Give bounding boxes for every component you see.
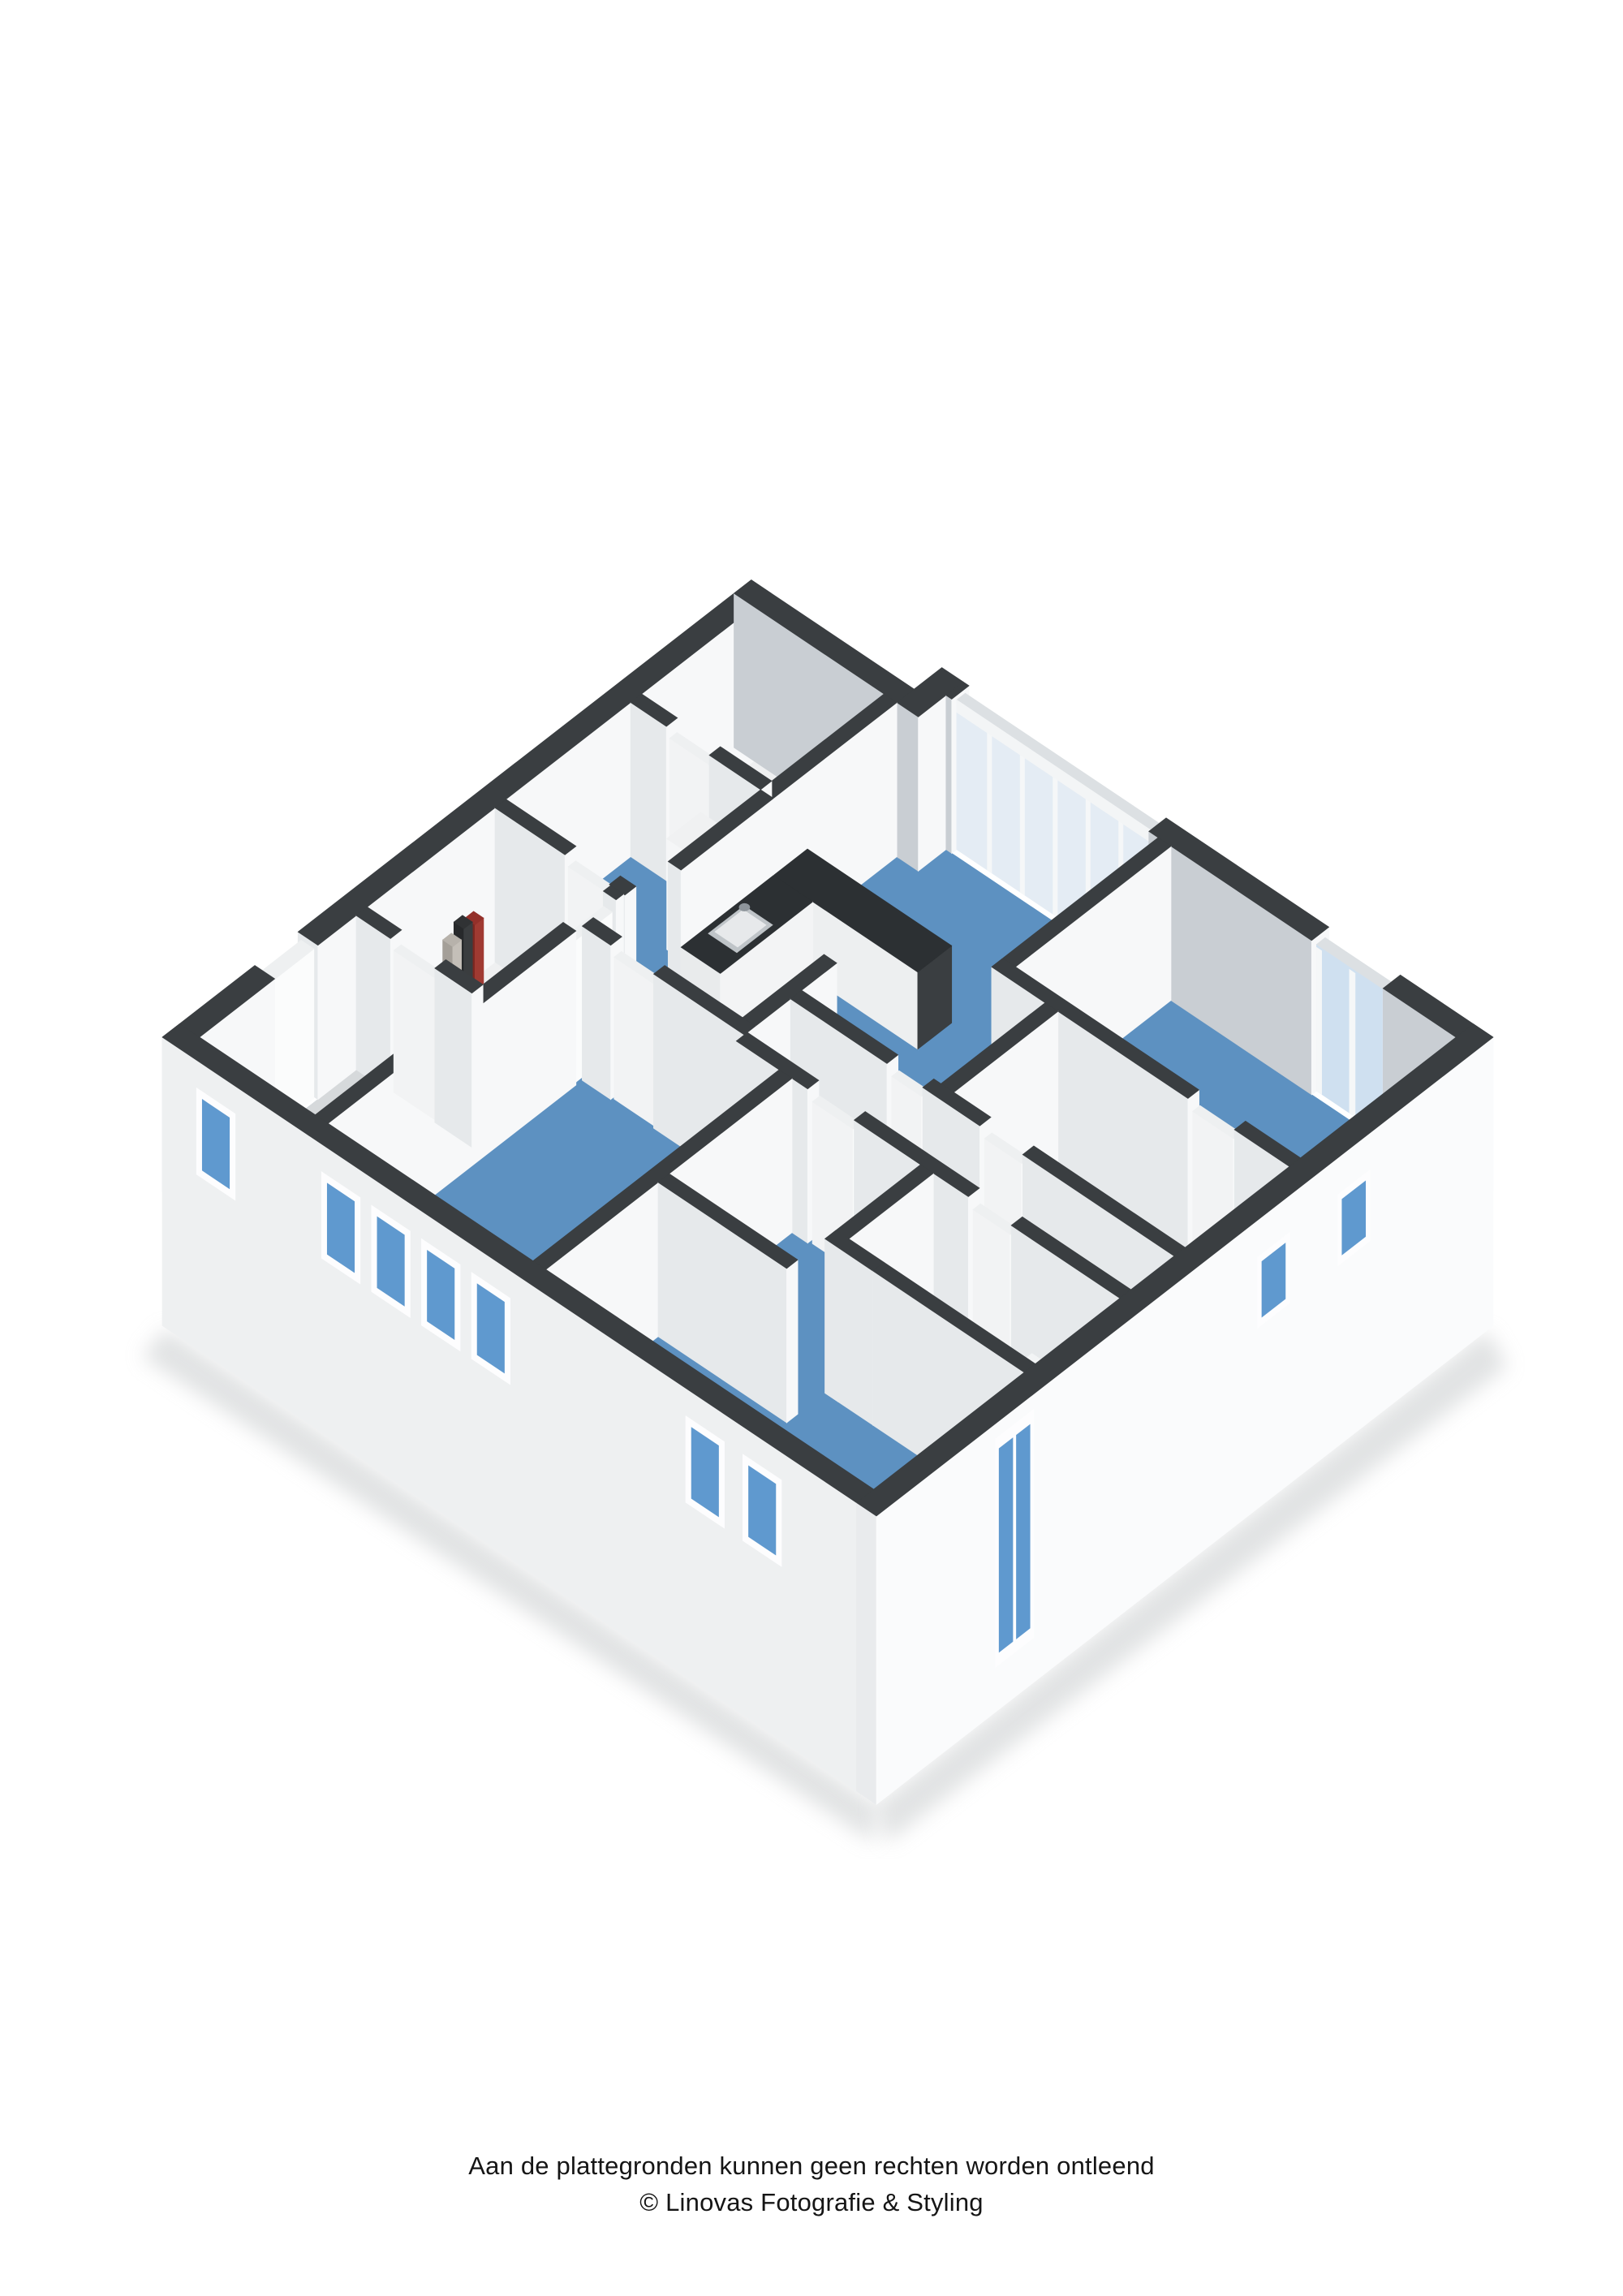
glass-mullion-3	[1053, 768, 1057, 917]
glass-mullion-2	[1020, 746, 1024, 895]
backdoor-se-glass-right	[999, 1438, 1013, 1652]
disclaimer-text: Aan de plattegronden kunnen geen rechten…	[0, 2147, 1623, 2184]
copyright-text: © Linovas Fotografie & Styling	[0, 2184, 1623, 2221]
wall-master-ne-a-face-sw	[582, 926, 610, 1100]
wall-se-face-sw	[856, 1503, 876, 1805]
door-hall-entrance-face-sw	[394, 950, 435, 1120]
door-master-bedroom-face-sw	[614, 957, 654, 1126]
floorplan-page: Aan de plattegronden kunnen geen rechten…	[0, 0, 1623, 2296]
backdoor-se-glass-left	[1017, 1424, 1031, 1639]
wall-hall-entrance-b	[435, 959, 483, 1147]
french-post-left	[1316, 947, 1321, 1094]
french-post-center	[1350, 970, 1355, 1118]
wall-bath-sw-a-face-sw	[825, 1238, 873, 1425]
wall-ne-jog-face-sw	[897, 703, 918, 872]
wall-ne-a-face-sw	[946, 696, 952, 854]
floorplan-3d-render	[0, 0, 1623, 2296]
wall-hall-entrance-b-face-se	[472, 984, 484, 1148]
caption-block: Aan de plattegronden kunnen geen rechten…	[0, 2147, 1623, 2221]
wall-hall-entrance-b-face-sw	[435, 968, 472, 1148]
wall-smallbed-sw-face-se	[786, 1260, 798, 1423]
glass-mullion-1	[988, 724, 992, 873]
walls-and-furniture-layer	[162, 580, 1493, 1805]
wall-toproom-sw-a-face-sw	[631, 703, 666, 881]
